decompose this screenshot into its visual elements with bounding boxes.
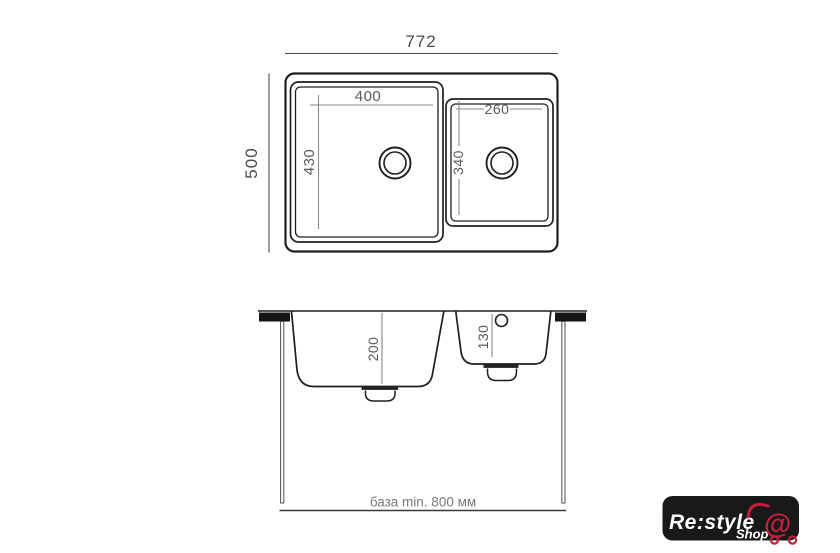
dim-second-bowl-depth-label: 340: [450, 150, 466, 175]
second-drain-trap: [488, 369, 517, 381]
cabinet-side-left: [281, 322, 284, 504]
dim-main-bowl-height-label: 200: [365, 337, 381, 362]
dim-overall-depth-label: 500: [242, 147, 261, 178]
dim-overall-width-label: 772: [405, 32, 436, 51]
main-drain-flange: [362, 387, 399, 390]
dim-second-bowl-width-label: 260: [485, 101, 510, 117]
cart-wheel-right-icon: [789, 536, 796, 543]
countertop-section-left: [259, 313, 290, 322]
drawing-canvas: 772 500 400 430 260 340: [0, 0, 840, 553]
dim-main-bowl-depth-label: 430: [301, 149, 318, 176]
tap-hole-icon: [496, 315, 508, 327]
restyle-shop-logo[interactable]: Re:style Shop @: [663, 496, 800, 544]
cabinet-side-right: [562, 322, 565, 504]
section-view: 200 130 база min. 800 мм: [258, 311, 587, 511]
dim-second-bowl-height-label: 130: [475, 325, 491, 350]
plan-view: 772 500 400 430 260 340: [242, 32, 558, 253]
cart-at-icon: @: [764, 508, 791, 539]
base-note-label: база min. 800 мм: [370, 495, 476, 510]
countertop-section-right: [555, 313, 586, 322]
dim-main-bowl-width-label: 400: [355, 88, 382, 105]
second-bowl-profile: [456, 312, 551, 365]
second-drain-flange: [484, 365, 519, 368]
main-drain-trap: [366, 391, 396, 402]
